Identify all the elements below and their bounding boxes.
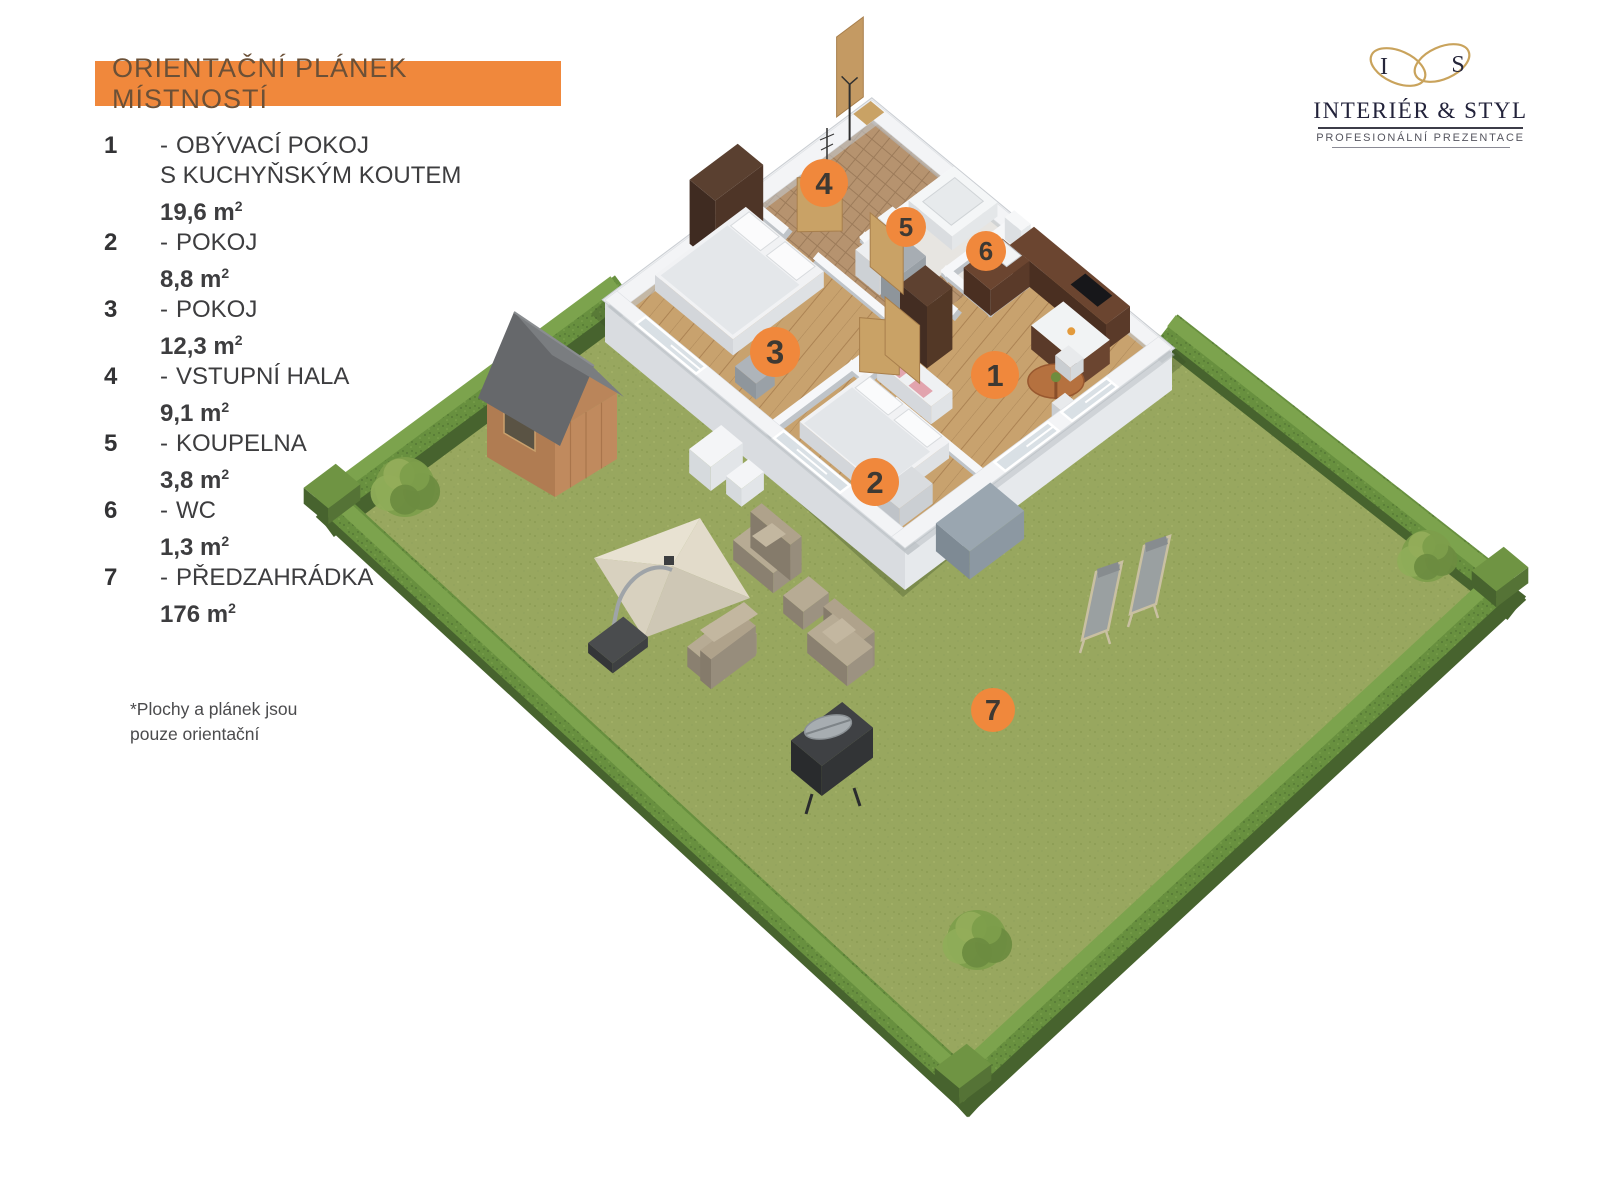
legend-item-2: 2-POKOJ8,8 m2 bbox=[104, 228, 461, 295]
legend-item-area: 176 m2 bbox=[160, 593, 461, 630]
legend-item-number: 6 bbox=[104, 496, 138, 526]
room-marker-label: 6 bbox=[979, 236, 993, 266]
legend-item-name: -WC bbox=[160, 496, 461, 526]
logo-divider-2 bbox=[1332, 147, 1510, 148]
room-marker-3: 3 bbox=[750, 327, 800, 377]
legend-item-5: 5-KOUPELNA3,8 m2 bbox=[104, 429, 461, 496]
room-marker-label: 2 bbox=[866, 465, 883, 500]
legend-item-area: 1,3 m2 bbox=[160, 526, 461, 563]
legend-item-area: 12,3 m2 bbox=[160, 325, 461, 362]
room-marker-4: 4 bbox=[800, 159, 848, 207]
legend-item-number: 1 bbox=[104, 131, 138, 161]
legend-item-number: 5 bbox=[104, 429, 138, 459]
legend-item-area: 8,8 m2 bbox=[160, 258, 461, 295]
logo-monogram-icon: I S bbox=[1346, 34, 1496, 96]
plan-title-bar: ORIENTAČNÍ PLÁNEK MÍSTNOSTÍ bbox=[95, 61, 561, 106]
legend-item-separator: - bbox=[160, 228, 168, 258]
legend-item-number: 3 bbox=[104, 295, 138, 325]
legend-item-area: 9,1 m2 bbox=[160, 392, 461, 429]
legend-item-name: -POKOJ bbox=[160, 228, 461, 258]
legend-item-7: 7-PŘEDZAHRÁDKA176 m2 bbox=[104, 563, 461, 630]
legend-item-6: 6-WC1,3 m2 bbox=[104, 496, 461, 563]
footnote-line-1: *Plochy a plánek jsou bbox=[130, 697, 297, 722]
page: { "header": { "title": "ORIENTAČNÍ PLÁNE… bbox=[0, 0, 1600, 1199]
legend-item-name: -VSTUPNÍ HALA bbox=[160, 362, 461, 392]
room-marker-label: 7 bbox=[985, 695, 1001, 727]
room-marker-2: 2 bbox=[851, 458, 899, 506]
room-marker-7: 7 bbox=[971, 688, 1015, 732]
room-marker-5: 5 bbox=[886, 207, 926, 247]
logo-name: INTERIÉR & STYL bbox=[1313, 98, 1527, 124]
legend-item-number: 2 bbox=[104, 228, 138, 258]
room-marker-6: 6 bbox=[966, 231, 1006, 271]
legend-item-separator: - bbox=[160, 362, 168, 392]
legend-item-name: S KUCHYŇSKÝM KOUTEM bbox=[160, 161, 461, 191]
legend-item-separator: - bbox=[160, 131, 168, 161]
legend-item-area: 3,8 m2 bbox=[160, 459, 461, 496]
room-marker-label: 5 bbox=[899, 212, 913, 242]
legend-item-1: 1-OBÝVACÍ POKOJS KUCHYŇSKÝM KOUTEM19,6 m… bbox=[104, 131, 461, 228]
plan-title: ORIENTAČNÍ PLÁNEK MÍSTNOSTÍ bbox=[112, 53, 561, 115]
legend-item-number: 7 bbox=[104, 563, 138, 593]
legend-item-name: -KOUPELNA bbox=[160, 429, 461, 459]
legend-item-separator: - bbox=[160, 429, 168, 459]
legend-item-separator: - bbox=[160, 295, 168, 325]
footnote-line-2: pouze orientační bbox=[130, 722, 297, 747]
room-marker-label: 3 bbox=[766, 333, 784, 370]
legend-item-name: -PŘEDZAHRÁDKA bbox=[160, 563, 461, 593]
legend-item-number: 4 bbox=[104, 362, 138, 392]
logo-letter-s: S bbox=[1451, 52, 1464, 78]
room-marker-label: 1 bbox=[986, 358, 1003, 393]
legend-item-name: -OBÝVACÍ POKOJ bbox=[160, 131, 461, 161]
company-logo: I S INTERIÉR & STYL PROFESIONÁLNÍ PREZEN… bbox=[1318, 34, 1523, 148]
legend-item-name: -POKOJ bbox=[160, 295, 461, 325]
logo-letter-i: I bbox=[1380, 54, 1388, 80]
legend-item-3: 3-POKOJ12,3 m2 bbox=[104, 295, 461, 362]
legend-item-separator: - bbox=[160, 496, 168, 526]
room-marker-label: 4 bbox=[815, 166, 833, 201]
logo-tagline: PROFESIONÁLNÍ PREZENTACE bbox=[1316, 132, 1525, 144]
footnote: *Plochy a plánek jsou pouze orientační bbox=[130, 697, 297, 747]
legend-item-4: 4-VSTUPNÍ HALA9,1 m2 bbox=[104, 362, 461, 429]
legend-item-area: 19,6 m2 bbox=[160, 191, 461, 228]
room-marker-1: 1 bbox=[971, 351, 1019, 399]
legend: 1-OBÝVACÍ POKOJS KUCHYŇSKÝM KOUTEM19,6 m… bbox=[104, 131, 461, 630]
logo-divider bbox=[1318, 127, 1523, 129]
legend-item-separator: - bbox=[160, 563, 168, 593]
